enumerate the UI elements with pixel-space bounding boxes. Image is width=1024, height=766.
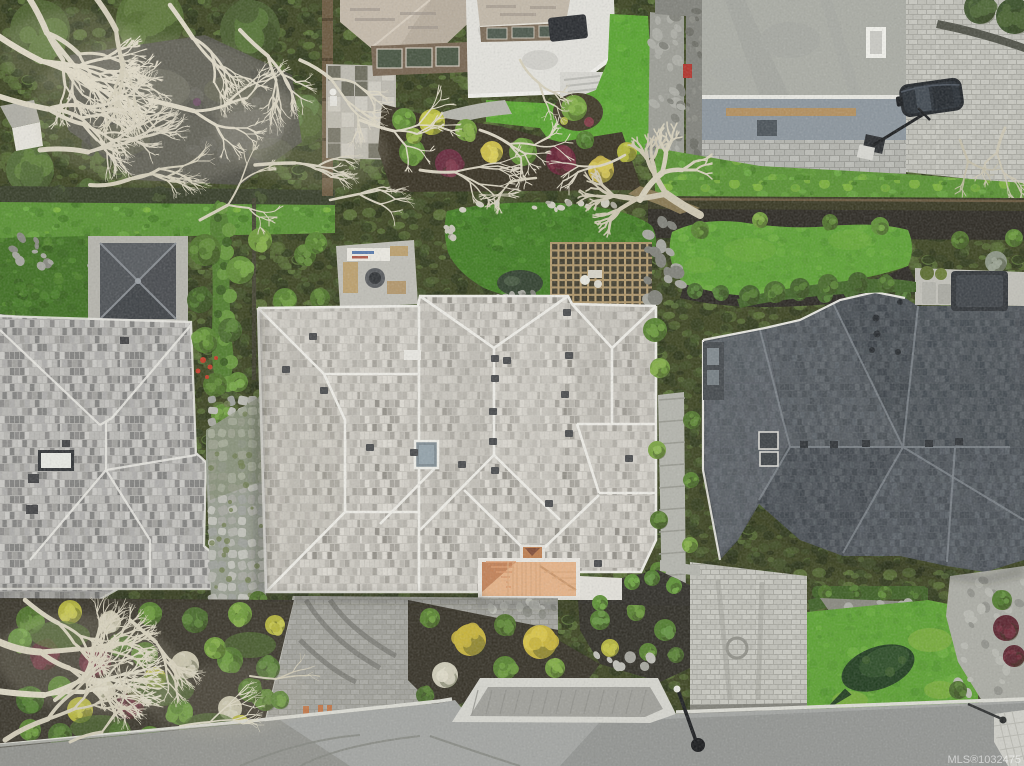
svg-text:MLS®1032475: MLS®1032475 (947, 754, 1021, 766)
